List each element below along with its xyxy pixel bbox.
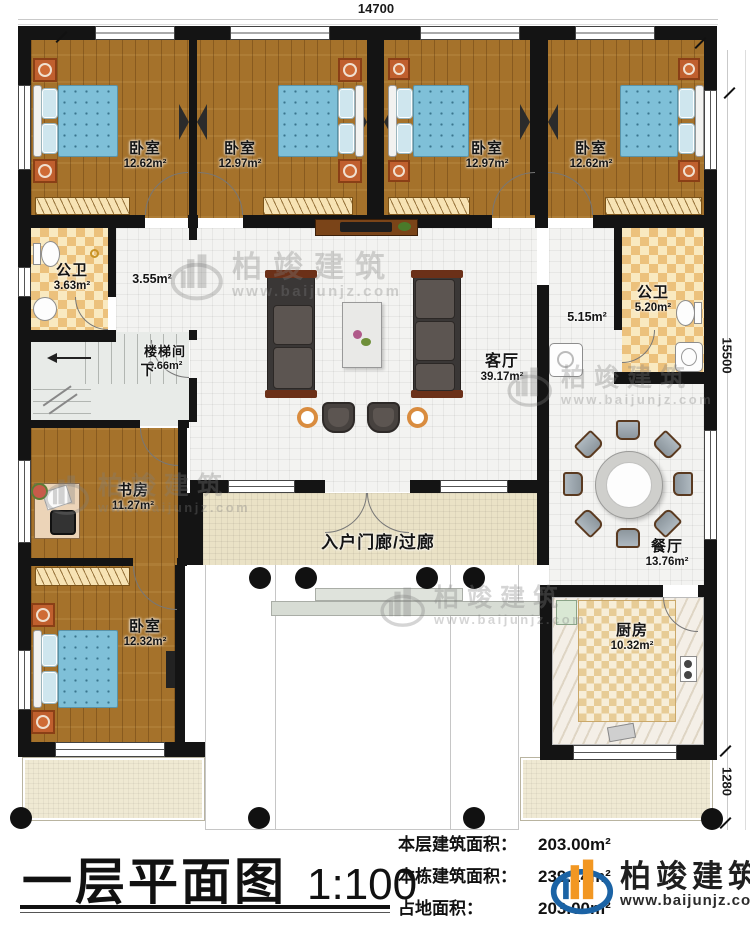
room-label-study: 书房 11.27m² xyxy=(112,482,154,514)
window xyxy=(55,742,165,757)
room-name: 卧室 xyxy=(124,140,167,158)
room-label-bedroom4: 卧室 12.62m² xyxy=(570,140,613,172)
stair-down-label: 下 xyxy=(141,362,156,379)
column xyxy=(416,567,438,589)
dimension-line xyxy=(745,50,746,830)
window xyxy=(420,26,520,40)
dimension-line xyxy=(18,19,718,20)
room-label-dining: 餐厅 13.76m² xyxy=(646,538,689,570)
dining-chair xyxy=(563,472,583,496)
coffee-table xyxy=(342,302,382,368)
nightstand xyxy=(33,58,57,82)
wardrobe xyxy=(605,197,702,215)
bed-headboard xyxy=(355,85,364,157)
side-table xyxy=(407,407,428,428)
column xyxy=(463,567,485,589)
room-area: 39.17m² xyxy=(481,371,524,385)
window xyxy=(440,480,508,493)
dining-chair xyxy=(673,472,693,496)
nightstand xyxy=(388,160,410,182)
room-label-bath-left: 公卫 3.63m² xyxy=(54,262,90,294)
wall xyxy=(540,585,552,745)
bed-mattress xyxy=(278,85,338,157)
window xyxy=(18,85,31,170)
wall xyxy=(704,170,717,430)
wall xyxy=(614,228,622,330)
computer-icon xyxy=(50,510,76,535)
wall xyxy=(108,228,116,297)
bed-headboard xyxy=(388,85,397,157)
wall xyxy=(410,480,440,493)
room-name: 卧室 xyxy=(124,618,167,636)
window xyxy=(573,745,677,760)
wardrobe xyxy=(388,197,470,215)
room-area: 12.32m² xyxy=(124,636,167,650)
room-area: 3.55m² xyxy=(132,272,172,287)
title-underline xyxy=(20,905,390,909)
wall xyxy=(18,26,31,85)
wardrobe xyxy=(263,197,353,215)
wall xyxy=(189,228,197,240)
room-label-living: 客厅 39.17m² xyxy=(481,352,524,385)
porch-steps xyxy=(315,588,463,601)
dining-table-top xyxy=(606,462,652,508)
shower-icon xyxy=(90,249,99,258)
wall xyxy=(189,330,197,340)
nightstand xyxy=(388,58,410,80)
room-label-bedroom3: 卧室 12.97m² xyxy=(466,140,509,172)
door-leaf-icon xyxy=(197,104,207,140)
wall xyxy=(540,585,663,597)
burner-icon xyxy=(684,660,692,668)
dimension-tick xyxy=(723,87,735,99)
wall xyxy=(537,493,549,565)
bed-pillow xyxy=(397,124,412,153)
nightstand xyxy=(338,159,362,183)
wall xyxy=(178,420,189,428)
room-area: 12.62m² xyxy=(124,158,167,172)
wall xyxy=(18,543,31,650)
nightstand xyxy=(678,58,700,80)
bed-pillow xyxy=(397,89,412,118)
porch-steps xyxy=(271,601,540,616)
wall xyxy=(189,378,197,422)
title-underline-thin xyxy=(20,912,390,913)
patio-left xyxy=(22,757,205,821)
bed-mattress xyxy=(58,85,118,157)
room-area: 11.27m² xyxy=(112,500,154,514)
bed-mattress xyxy=(58,630,118,708)
dining-chair xyxy=(616,528,640,548)
room-label-bedroom2: 卧室 12.97m² xyxy=(219,140,262,172)
wall xyxy=(165,742,205,757)
sofa-cushion xyxy=(415,279,455,319)
column xyxy=(248,807,270,829)
room-name: 卧室 xyxy=(570,140,613,158)
bed-headboard xyxy=(33,85,42,157)
wall xyxy=(593,215,717,228)
brand-logo: 柏竣建筑 www.baijunjz.com xyxy=(548,852,750,918)
fridge xyxy=(556,600,577,625)
sink xyxy=(681,348,697,366)
sofa-cushion xyxy=(415,363,455,391)
bed-pillow xyxy=(679,89,694,118)
stair-arrow-icon xyxy=(47,353,57,363)
room-label-hall-right: 5.15m² xyxy=(567,310,607,325)
sofa-cushion xyxy=(415,321,455,361)
dining-chair xyxy=(616,420,640,440)
room-label-bedroom5: 卧室 12.32m² xyxy=(124,618,167,650)
sofa-cushion xyxy=(273,305,313,345)
room-name: 卧室 xyxy=(219,140,262,158)
room-area: 12.97m² xyxy=(219,158,262,172)
tv xyxy=(166,651,175,688)
wall xyxy=(295,480,325,493)
nightstand xyxy=(31,710,55,734)
wall xyxy=(18,330,116,342)
wall xyxy=(367,40,384,215)
nightstand xyxy=(678,160,700,182)
wall xyxy=(704,26,717,90)
column xyxy=(10,807,32,829)
door-leaf-icon xyxy=(548,104,558,140)
window xyxy=(575,26,655,40)
room-area: 13.76m² xyxy=(646,556,689,570)
wardrobe xyxy=(35,567,130,586)
sofa-cushion xyxy=(273,347,313,389)
kitchen-floor xyxy=(578,600,676,722)
toilet xyxy=(676,300,695,326)
wall xyxy=(537,285,549,493)
wall xyxy=(520,26,575,40)
wall xyxy=(175,26,230,40)
wardrobe xyxy=(35,197,130,215)
window xyxy=(230,26,330,40)
title-text: 一层平面图 xyxy=(22,842,287,914)
bed-pillow xyxy=(42,672,57,703)
nightstand xyxy=(33,159,57,183)
brand-text: 柏竣建筑 www.baijunjz.com xyxy=(620,861,750,909)
toilet-tank xyxy=(33,243,41,265)
burner-icon xyxy=(684,671,692,679)
room-name: 书房 xyxy=(112,482,154,500)
washing-machine-door xyxy=(557,351,574,368)
window xyxy=(95,26,175,40)
bed-headboard xyxy=(695,85,704,157)
door-leaf-icon xyxy=(179,104,189,140)
wall xyxy=(18,215,145,228)
door-leaf-icon xyxy=(520,104,530,140)
nightstand xyxy=(31,603,55,627)
bed-pillow xyxy=(339,89,354,118)
courtyard-edge xyxy=(205,565,206,830)
nightstand xyxy=(338,58,362,82)
window xyxy=(18,460,31,543)
column xyxy=(463,807,485,829)
floor-plan: 卧室 12.62m² 卧室 12.97m² 卧室 12.97m² 卧室 12.6… xyxy=(0,0,750,933)
stool xyxy=(367,402,400,433)
room-name: 餐厅 xyxy=(646,538,689,556)
dimension-bottom-right: 1280 xyxy=(720,757,735,807)
sink xyxy=(33,297,57,321)
flower-icon xyxy=(353,330,362,339)
bed-pillow xyxy=(42,124,57,153)
room-area: 10.32m² xyxy=(611,640,654,654)
window xyxy=(18,650,31,710)
column xyxy=(249,567,271,589)
column xyxy=(295,567,317,589)
wall xyxy=(535,215,548,228)
room-name: 客厅 xyxy=(481,352,524,371)
wall xyxy=(614,372,704,384)
window xyxy=(704,90,717,170)
tv xyxy=(340,222,392,232)
room-area: 12.97m² xyxy=(466,158,509,172)
window xyxy=(704,430,717,540)
window xyxy=(228,480,295,493)
bed-pillow xyxy=(339,124,354,153)
wall xyxy=(18,742,55,757)
room-label-hall-left: 3.55m² xyxy=(132,272,172,287)
stool xyxy=(322,402,355,433)
drawing-title: 一层平面图 1:100 xyxy=(22,842,417,914)
wall xyxy=(704,540,717,760)
wall xyxy=(189,40,197,215)
room-area: 5.20m² xyxy=(635,302,671,316)
wall xyxy=(31,420,140,428)
flower-icon xyxy=(361,338,371,346)
bed-mattress xyxy=(413,85,469,157)
wall xyxy=(18,297,31,460)
room-area: 3.63m² xyxy=(54,280,90,294)
wall xyxy=(698,585,704,597)
dimension-top: 14700 xyxy=(334,1,418,16)
stair-arrow-line xyxy=(55,357,91,359)
wall xyxy=(185,493,203,565)
wall xyxy=(188,215,198,228)
room-area: 5.15m² xyxy=(567,310,607,325)
window xyxy=(18,267,31,297)
plant-icon xyxy=(33,485,46,498)
room-name: 入户门廊/过廊 xyxy=(321,533,435,553)
dimension-right: 15500 xyxy=(720,321,735,391)
room-label-kitchen: 厨房 10.32m² xyxy=(611,622,654,654)
room-name: 厨房 xyxy=(611,622,654,640)
bed-pillow xyxy=(42,635,57,666)
room-name: 卧室 xyxy=(466,140,509,158)
wall xyxy=(677,745,717,760)
wall xyxy=(540,745,573,760)
dimension-tick xyxy=(719,745,731,757)
dimension-line xyxy=(727,50,728,830)
bed-mattress xyxy=(620,85,678,157)
plant-icon xyxy=(398,222,411,231)
room-name: 楼梯间 xyxy=(144,344,186,360)
bed-headboard xyxy=(33,630,42,708)
dimension-line xyxy=(18,24,718,25)
patio-right xyxy=(520,757,713,821)
wall xyxy=(190,480,228,493)
side-table xyxy=(297,407,318,428)
bed-pillow xyxy=(679,124,694,153)
wall xyxy=(330,26,420,40)
wall xyxy=(31,558,133,566)
toilet-tank xyxy=(694,302,702,324)
room-name: 公卫 xyxy=(54,262,90,280)
room-label-porch: 入户门廊/过廊 xyxy=(321,533,435,553)
bed-pillow xyxy=(42,89,57,118)
brand-building-icon xyxy=(548,852,614,918)
room-label-bedroom1: 卧室 12.62m² xyxy=(124,140,167,172)
room-label-bath-right: 公卫 5.20m² xyxy=(635,284,671,316)
room-area: 12.62m² xyxy=(570,158,613,172)
room-name: 公卫 xyxy=(635,284,671,302)
